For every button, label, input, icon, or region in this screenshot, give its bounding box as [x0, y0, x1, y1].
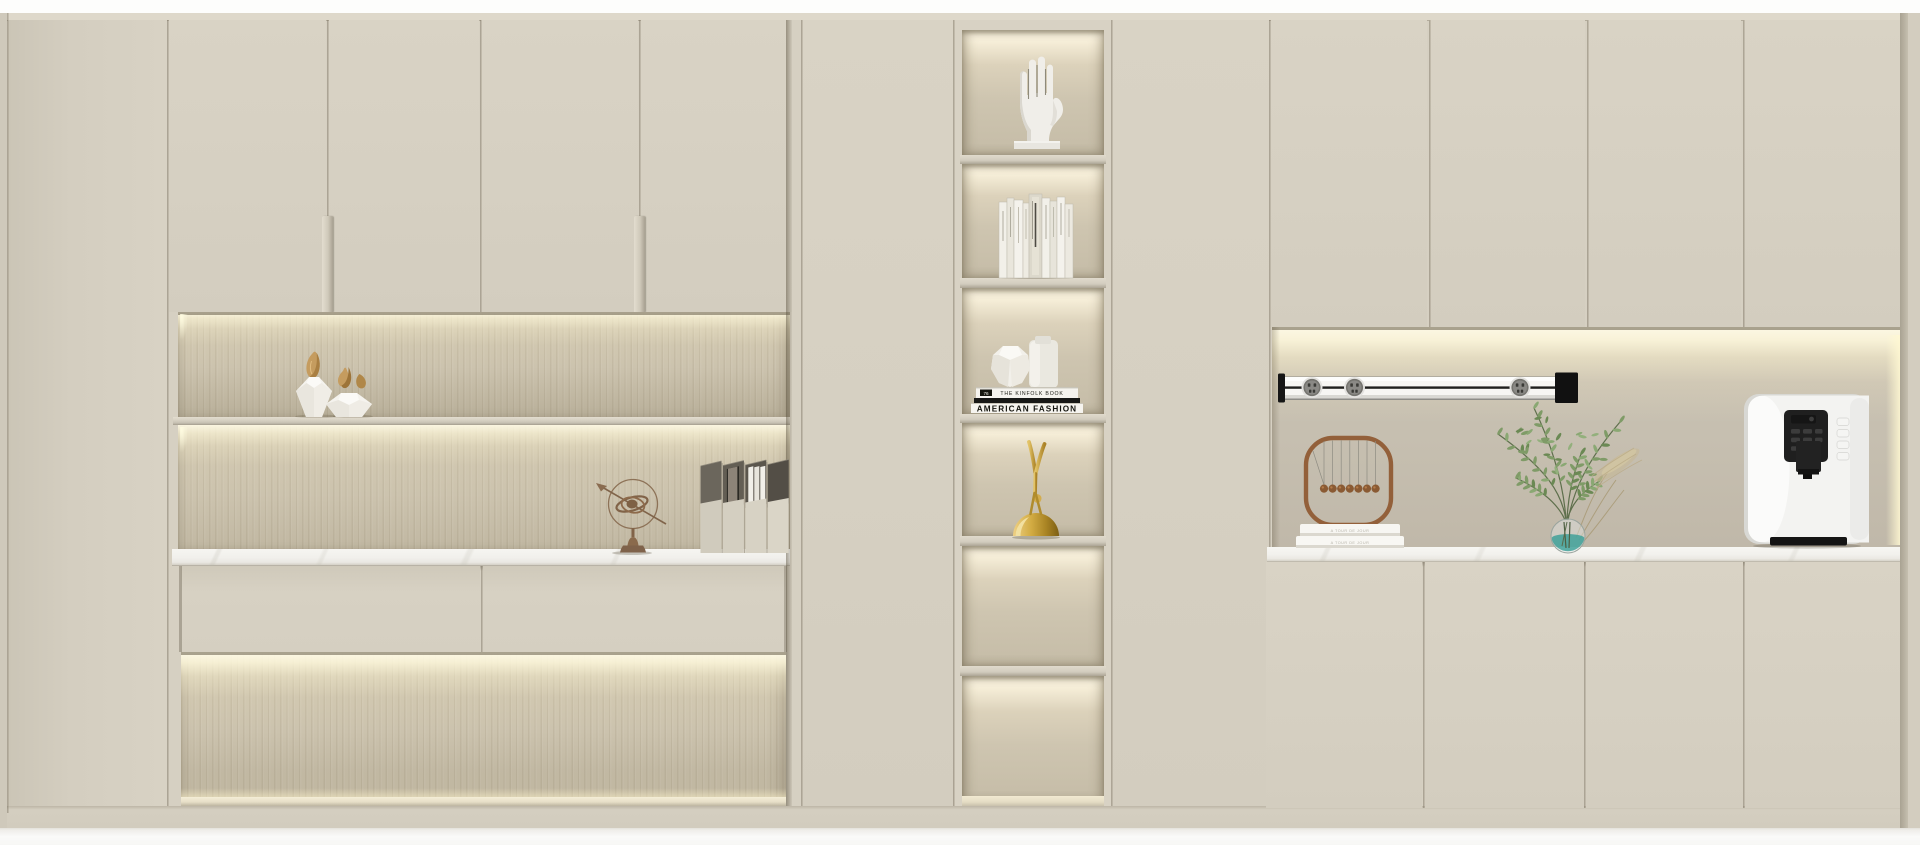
- svg-text:76: 76: [983, 391, 989, 396]
- svg-text:THE KINFOLK BOOK: THE KINFOLK BOOK: [1000, 391, 1063, 397]
- svg-text:A TOUR DE JOUR: A TOUR DE JOUR: [1331, 541, 1370, 545]
- svg-text:AMERICAN FASHION: AMERICAN FASHION: [977, 404, 1077, 413]
- svg-text:A TOUR DE JOUR: A TOUR DE JOUR: [1331, 529, 1370, 533]
